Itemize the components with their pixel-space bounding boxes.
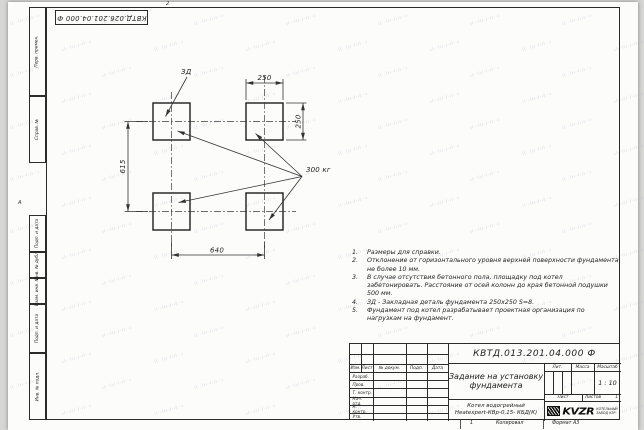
title-block-line [427, 344, 428, 421]
signature-row-label: Н. контр. [351, 405, 372, 413]
note-number: 4. [352, 299, 367, 307]
dim-right-height: 250 [295, 114, 303, 128]
title-block-line [373, 344, 374, 421]
signature-row-label: Пров. [351, 380, 372, 388]
product-name: Котел водогрейный Heatexpert-КВр-0,15- К… [448, 399, 544, 421]
kvzr-logo-text: KVZR [562, 405, 594, 417]
dim-top-width: 250 [258, 74, 272, 82]
mass-label: Масса [571, 363, 594, 371]
note-number: 5. [352, 307, 367, 324]
format-label: Формат А3 [552, 421, 579, 426]
title-block-line [406, 344, 407, 421]
title-block-line [553, 371, 554, 394]
signature-row-label: Утв. [351, 413, 372, 421]
sheets-cell: Листов 1 [582, 394, 621, 401]
change-header-cell: Дата [427, 364, 448, 372]
kvzr-logo-icon [547, 406, 560, 416]
note-text: В случае отсутствия бетонного пола, площ… [367, 274, 620, 299]
dim-left-span: 615 [119, 159, 127, 173]
note-item: 5.Фундамент под котел разрабатывает прое… [352, 307, 620, 324]
sheets-value: 1 [615, 395, 618, 400]
note-item: 3.В случае отсутствия бетонного пола, пл… [352, 274, 620, 299]
change-header-cell: Лист [361, 364, 373, 372]
note-number: 3. [352, 274, 367, 299]
change-header-cell: Изм. [350, 364, 361, 372]
company-tagline: КОТЕЛЬНЫЙ ЗАВОД КЗР [596, 407, 617, 416]
sheets-label: Листов [585, 395, 601, 400]
change-header-cell: № докум. [373, 364, 406, 372]
change-header-cell: Подп. [406, 364, 427, 372]
signature-row-label: Разраб. [351, 372, 372, 380]
note-text: Фундамент под котел разрабатывает проект… [367, 307, 620, 324]
notes-list: 1.Размеры для справки.2.Отклонение от го… [352, 249, 620, 324]
zone-marker-bottom: 1 [470, 421, 473, 426]
note-item: 2.Отклонение от горизонтального уровня в… [352, 257, 620, 274]
note-text: Размеры для справки. [367, 249, 620, 257]
load-callout-label: 300 кг [306, 166, 331, 174]
title-block-line [562, 371, 563, 394]
bottom-margin-tick [460, 420, 461, 429]
title-block-line [350, 354, 448, 355]
document-designation: КВТД.013.201.04.000 Ф [448, 344, 621, 363]
drawing-sheet: КВТД.026.201.04.000 Ф 2 А Перв. примен.С… [0, 0, 644, 430]
note-item: 4.ЗД - Закладная деталь фундамента 250х2… [352, 299, 620, 307]
lit-label: Лит. [544, 363, 571, 371]
bottom-margin-tick [543, 420, 544, 429]
dim-bottom-span: 640 [210, 247, 224, 255]
company-cell: KVZR КОТЕЛЬНЫЙ ЗАВОД КЗР [544, 401, 621, 421]
copied-label: Копировал [496, 421, 523, 426]
title-block: Изм.Лист№ докум.Подп.Дата Разраб.Пров.Т.… [349, 343, 620, 420]
note-item: 1.Размеры для справки. [352, 249, 620, 257]
plate-callout-label: ЗД [181, 68, 192, 76]
scale-label: Масштаб [594, 363, 621, 371]
note-number: 1. [352, 249, 367, 257]
note-number: 2. [352, 257, 367, 274]
scale-value: 1 : 10 [594, 371, 621, 394]
sheet-label: Лист [544, 394, 582, 401]
note-text: ЗД - Закладная деталь фундамента 250х250… [367, 299, 620, 307]
document-title: Задание на установку фундамента [448, 363, 544, 399]
note-text: Отклонение от горизонтального уровня вер… [367, 257, 620, 274]
